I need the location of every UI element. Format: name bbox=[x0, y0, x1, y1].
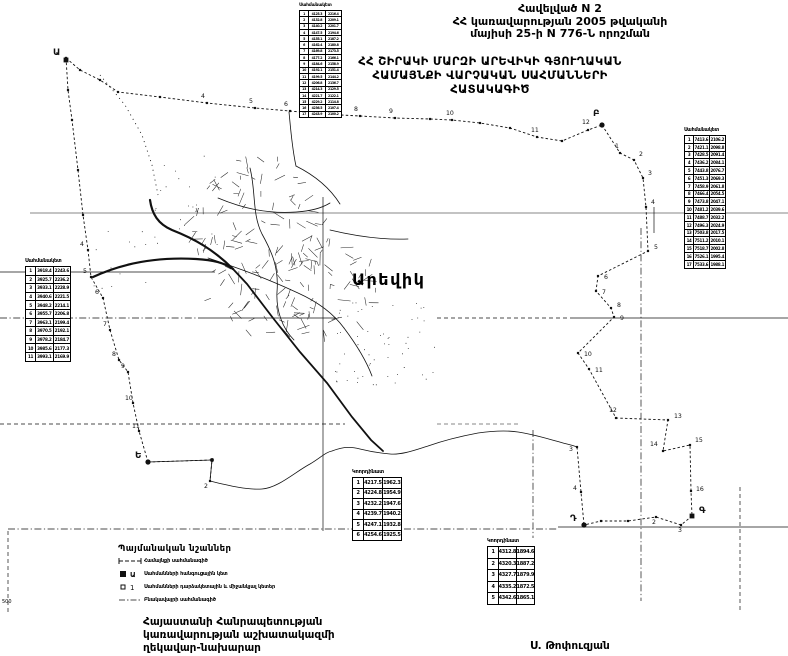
boundary-point-number: 6 bbox=[95, 289, 99, 296]
coordinate-cell: 2039.6 bbox=[710, 206, 725, 213]
boundary-point bbox=[577, 352, 579, 354]
boundary-point-number: 8 bbox=[617, 302, 621, 309]
coordinate-cell: 2017.5 bbox=[710, 230, 725, 237]
coordinate-table-body: 14125.32216.424132.82209.134140.22201.74… bbox=[299, 10, 342, 118]
boundary-point bbox=[209, 480, 211, 482]
boundary-point bbox=[77, 169, 79, 171]
point-number-cell: 1 bbox=[488, 547, 499, 558]
coordinate-cell: 2122.1 bbox=[326, 93, 341, 98]
coordinate-cell: 2069.3 bbox=[710, 175, 725, 182]
boundary-point-number: 12 bbox=[582, 119, 590, 126]
boundary-point-number: 5 bbox=[83, 268, 87, 275]
coordinate-cell: 2216.4 bbox=[326, 11, 341, 16]
boundary-point bbox=[132, 402, 134, 404]
road-line bbox=[218, 198, 330, 212]
boundary-point bbox=[645, 206, 647, 208]
point-number-cell: 7 bbox=[300, 49, 309, 54]
coordinate-table-body: 14312.81894.624320.31887.234327.71879.94… bbox=[487, 546, 535, 605]
coordinate-cell: 4140.2 bbox=[309, 24, 325, 29]
coordinate-table-header: Սահմանակետ bbox=[684, 128, 726, 133]
coordinate-cell: 2158.9 bbox=[326, 61, 341, 66]
point-number-cell: 6 bbox=[26, 310, 36, 318]
coordinate-cell: 4236.5 bbox=[309, 105, 325, 110]
boundary-point bbox=[610, 307, 612, 309]
table-row: 13918.42243.6 bbox=[26, 267, 70, 276]
coordinate-cell: 1947.6 bbox=[383, 499, 401, 509]
coordinate-cell: 7451.3 bbox=[694, 175, 709, 182]
junction-point-letter: Դ bbox=[570, 514, 577, 524]
boundary-point bbox=[576, 446, 578, 448]
coordinate-cell: 2061.8 bbox=[710, 183, 725, 190]
coordinate-cell: 1962.3 bbox=[383, 478, 401, 488]
table-row: 37428.52091.4 bbox=[685, 152, 725, 160]
junction-point-letter: Ա bbox=[53, 48, 60, 58]
coordinate-cell: 1925.5 bbox=[383, 531, 401, 541]
table-row: 54342.61865.1 bbox=[488, 593, 534, 604]
boundary-point bbox=[394, 117, 396, 119]
coordinate-cell: 4320.3 bbox=[499, 559, 517, 570]
boundary-point-number: 14 bbox=[650, 441, 658, 448]
boundary-point bbox=[561, 140, 563, 142]
coordinate-cell: 3933.1 bbox=[36, 284, 53, 292]
coordinate-cell: 2151.4 bbox=[326, 68, 341, 73]
coordinate-cell: 4221.7 bbox=[309, 93, 325, 98]
coordinate-cell: 4243.9 bbox=[309, 112, 325, 117]
table-row: 93978.22184.7 bbox=[26, 336, 70, 345]
coordinate-cell: 3925.7 bbox=[36, 276, 53, 284]
point-number-cell: 3 bbox=[353, 499, 364, 509]
point-number-cell: 4 bbox=[26, 293, 36, 301]
coordinate-cell: 2187.2 bbox=[326, 36, 341, 41]
boundary-point bbox=[597, 275, 599, 277]
point-number-cell: 11 bbox=[26, 353, 36, 361]
legend-item: 1Սահմանների դարձակետային և միջանկյալ կետ… bbox=[118, 580, 338, 593]
boundary-point-number: 8 bbox=[112, 351, 116, 358]
point-number-cell: 5 bbox=[685, 167, 694, 174]
point-number-cell: 3 bbox=[300, 24, 309, 29]
coordinate-cell: 2047.1 bbox=[710, 198, 725, 205]
boundary-point bbox=[71, 119, 73, 121]
point-number-cell: 5 bbox=[300, 36, 309, 41]
coordinate-cell: 2107.4 bbox=[326, 105, 341, 110]
coordinate-cell: 2100.2 bbox=[326, 112, 341, 117]
legend-item: Համայնքի սահմանագիծ bbox=[118, 554, 338, 567]
point-number-cell: 6 bbox=[353, 531, 364, 541]
coordinate-cell: 4147.5 bbox=[309, 30, 325, 35]
junction-point-marker bbox=[690, 514, 695, 519]
boundary-point-number: 5 bbox=[249, 98, 253, 105]
boundary-point-number: 2 bbox=[652, 519, 656, 526]
table-row: 14312.81894.6 bbox=[488, 547, 534, 559]
coordinate-table-body: 14217.51962.324224.81954.934232.21947.64… bbox=[352, 477, 402, 541]
table-row: 107481.22039.6 bbox=[685, 206, 725, 214]
boundary-point bbox=[359, 115, 361, 117]
table-row: 113993.12169.9 bbox=[26, 353, 70, 361]
boundary-point bbox=[680, 524, 682, 526]
boundary-point-number: 12 bbox=[609, 407, 617, 414]
legend-item: Բնակավայրի սահմանագիծ bbox=[118, 593, 338, 606]
point-number-cell: 2 bbox=[488, 559, 499, 570]
terrain-stipple bbox=[155, 156, 218, 244]
table-row: 103985.62177.3 bbox=[26, 344, 70, 353]
coordinate-table: Սահմանակետ14125.32216.424132.82209.13414… bbox=[299, 3, 342, 118]
boundary-point-number: 10 bbox=[446, 110, 454, 117]
point-number-cell: 10 bbox=[26, 344, 36, 352]
coordinate-cell: 4192.1 bbox=[309, 68, 325, 73]
table-row: 73963.12199.4 bbox=[26, 319, 70, 328]
coordinate-table-body: 13918.42243.623925.72236.233933.12228.94… bbox=[25, 266, 71, 362]
boundary-point bbox=[600, 520, 602, 522]
boundary-point-number: 11 bbox=[531, 127, 539, 134]
coordinate-cell: 2010.1 bbox=[710, 237, 725, 244]
point-number-cell: 13 bbox=[300, 87, 309, 92]
footer-line: կառավարության աշխատակազմի bbox=[143, 629, 335, 642]
table-row: 33933.12228.9 bbox=[26, 284, 70, 293]
point-number-cell: 8 bbox=[26, 327, 36, 335]
point-number-cell: 14 bbox=[685, 237, 694, 244]
footer-line: Հայաստանի Հանրապետության bbox=[143, 616, 335, 629]
legend-item-label: Համայնքի սահմանագիծ bbox=[144, 558, 208, 564]
boundary-point bbox=[655, 516, 657, 518]
boundary-point-number: 7 bbox=[103, 321, 107, 328]
coordinate-cell: 2054.5 bbox=[710, 191, 725, 198]
coordinate-cell: 1894.6 bbox=[517, 547, 534, 558]
coordinate-cell: 7413.6 bbox=[694, 136, 709, 143]
boundary-point bbox=[138, 430, 140, 432]
coordinate-cell: 2129.5 bbox=[326, 87, 341, 92]
coordinate-cell: 4312.8 bbox=[499, 547, 517, 558]
junction-point-letter: Ե bbox=[135, 451, 142, 461]
boundary-point bbox=[588, 368, 590, 370]
table-row: 64254.61925.5 bbox=[353, 531, 401, 541]
boundary-point bbox=[595, 290, 597, 292]
coordinate-cell: 2192.1 bbox=[54, 327, 70, 335]
coordinate-cell: 2114.8 bbox=[326, 99, 341, 104]
point-number-cell: 4 bbox=[488, 582, 499, 593]
coordinate-cell: 2201.7 bbox=[326, 24, 341, 29]
boundary-point bbox=[79, 69, 81, 71]
boundary-point bbox=[127, 371, 129, 373]
table-row: 83970.52192.1 bbox=[26, 327, 70, 336]
boundary-point bbox=[254, 107, 256, 109]
boundary-point-number: 10 bbox=[125, 395, 133, 402]
boundary-point-number: 13 bbox=[674, 413, 682, 420]
point-number-cell: 5 bbox=[488, 593, 499, 604]
coordinate-cell: 4125.3 bbox=[309, 11, 325, 16]
boundary-point-number: 3 bbox=[569, 446, 573, 453]
boundary-point bbox=[642, 177, 644, 179]
point-number-cell: 9 bbox=[300, 61, 309, 66]
point-number-cell: 1 bbox=[300, 11, 309, 16]
legend: Պայմանական նշաններ Համայնքի սահմանագիծԱՍ… bbox=[118, 544, 338, 606]
table-row: 174243.92100.2 bbox=[300, 112, 341, 117]
boundary-point bbox=[99, 79, 101, 81]
boundary-point bbox=[667, 419, 669, 421]
coordinate-cell: 1954.9 bbox=[383, 489, 401, 499]
point-number-cell: 12 bbox=[685, 222, 694, 229]
coordinate-cell: 1995.4 bbox=[710, 253, 725, 260]
table-row: 177533.61988.1 bbox=[685, 261, 725, 268]
point-number-cell: 5 bbox=[353, 520, 364, 530]
point-number-cell: 3 bbox=[26, 284, 36, 292]
table-row: 67451.32069.3 bbox=[685, 175, 725, 183]
coordinate-cell: 2024.9 bbox=[710, 222, 725, 229]
point-number-cell: 6 bbox=[685, 175, 694, 182]
coordinate-cell: 2180.8 bbox=[326, 42, 341, 47]
map-sheet: Հավելված N 2 ՀՀ կառավարության 2005 թվակա… bbox=[0, 0, 788, 656]
coordinate-cell: 2084.1 bbox=[710, 159, 725, 166]
boundary-point-number: 4 bbox=[80, 241, 84, 248]
table-row: 14217.51962.3 bbox=[353, 478, 401, 489]
coordinate-cell: 1865.1 bbox=[517, 593, 534, 604]
coordinate-cell: 7488.7 bbox=[694, 214, 709, 221]
coordinate-cell: 3955.7 bbox=[36, 310, 53, 318]
boundary-point bbox=[689, 444, 691, 446]
coordinate-cell: 4217.5 bbox=[364, 478, 382, 488]
boundary-west-boundary bbox=[66, 58, 148, 462]
boundary-point bbox=[289, 110, 291, 112]
coordinate-cell: 2228.9 bbox=[54, 284, 70, 292]
coordinate-cell: 3970.5 bbox=[36, 327, 53, 335]
point-number-cell: 2 bbox=[300, 17, 309, 22]
table-row: 23925.72236.2 bbox=[26, 276, 70, 285]
table-row: 97473.82047.1 bbox=[685, 198, 725, 206]
coordinate-cell: 2209.1 bbox=[326, 17, 341, 22]
coordinate-cell: 2243.6 bbox=[54, 267, 70, 275]
point-number-cell: 4 bbox=[353, 510, 364, 520]
junction-point-marker bbox=[599, 122, 604, 127]
junction-point-marker bbox=[581, 522, 586, 527]
coordinate-cell: 2206.8 bbox=[54, 310, 70, 318]
coordinate-cell: 2091.4 bbox=[710, 152, 725, 159]
coordinate-cell: 7428.5 bbox=[694, 152, 709, 159]
coordinate-cell: 4224.8 bbox=[364, 489, 382, 499]
boundary-point-number: 2 bbox=[639, 151, 643, 158]
point-number-cell: 4 bbox=[300, 30, 309, 35]
junction-point-marker bbox=[145, 459, 150, 464]
boundary-point bbox=[509, 127, 511, 129]
table-row: 57443.82076.7 bbox=[685, 167, 725, 175]
coordinate-cell: 7436.2 bbox=[694, 159, 709, 166]
point-number-cell: 1 bbox=[685, 136, 694, 143]
boundary-point bbox=[627, 520, 629, 522]
coordinate-cell: 7421.1 bbox=[694, 144, 709, 151]
coordinate-cell: 2194.6 bbox=[326, 30, 341, 35]
coordinate-cell: 1988.1 bbox=[710, 261, 725, 268]
boundary-point bbox=[118, 359, 120, 361]
point-number-cell: 12 bbox=[300, 80, 309, 85]
boundary-point bbox=[109, 329, 111, 331]
boundary-point bbox=[587, 129, 589, 131]
point-number-cell: 2 bbox=[685, 144, 694, 151]
boundary-point bbox=[690, 490, 692, 492]
point-number-cell: 11 bbox=[685, 214, 694, 221]
boundary-point bbox=[647, 250, 649, 252]
scale-note: 500 bbox=[2, 599, 12, 605]
coordinate-cell: 3993.1 bbox=[36, 353, 53, 361]
point-number-cell: 6 bbox=[300, 42, 309, 47]
boundary-point bbox=[580, 491, 582, 493]
coordinate-cell: 3948.2 bbox=[36, 301, 53, 309]
road-line bbox=[250, 168, 294, 340]
point-number-cell: 1 bbox=[353, 478, 364, 488]
table-row: 167526.11995.4 bbox=[685, 253, 725, 261]
point-number-cell: 15 bbox=[300, 99, 309, 104]
table-row: 137503.82017.5 bbox=[685, 230, 725, 238]
point-number-cell: 7 bbox=[685, 183, 694, 190]
coordinate-cell: 3918.4 bbox=[36, 267, 53, 275]
coordinate-cell: 7526.1 bbox=[694, 253, 709, 260]
coordinate-cell: 7466.4 bbox=[694, 191, 709, 198]
boundary-point bbox=[117, 91, 119, 93]
boundary-point-number: 6 bbox=[604, 274, 608, 281]
boundary-point-number: 15 bbox=[695, 437, 703, 444]
table-row: 34232.21947.6 bbox=[353, 499, 401, 510]
coordinate-cell: 4335.2 bbox=[499, 582, 517, 593]
point-number-cell: 15 bbox=[685, 245, 694, 252]
coordinate-cell: 1879.9 bbox=[517, 570, 534, 581]
point-number-cell: 16 bbox=[685, 253, 694, 260]
point-number-cell: 1 bbox=[26, 267, 36, 275]
point-number-cell: 5 bbox=[26, 301, 36, 309]
coordinate-cell: 2106.2 bbox=[710, 136, 725, 143]
boundary-point-number: 9 bbox=[121, 363, 125, 370]
road-line bbox=[344, 328, 372, 376]
table-row: 24224.81954.9 bbox=[353, 489, 401, 500]
boundary-point bbox=[211, 459, 213, 461]
table-row: 157518.72002.8 bbox=[685, 245, 725, 253]
coordinate-cell: 4327.7 bbox=[499, 570, 517, 581]
point-number-cell: 9 bbox=[26, 336, 36, 344]
boundary-point bbox=[536, 136, 538, 138]
boundary-point-number: 8 bbox=[354, 106, 358, 113]
point-number-cell: 2 bbox=[26, 276, 36, 284]
issuer-signature-block: Հայաստանի Հանրապետության կառավարության ա… bbox=[143, 616, 335, 655]
boundary-point bbox=[102, 297, 104, 299]
boundary-point-number: 7 bbox=[602, 289, 606, 296]
coordinate-cell: 1887.2 bbox=[517, 559, 534, 570]
coordinate-table: Սահմանակետ13918.42243.623925.72236.23393… bbox=[25, 258, 71, 362]
point-number-cell: 4 bbox=[685, 159, 694, 166]
boundary-point-number: 11 bbox=[132, 423, 140, 430]
table-row: 127496.32024.9 bbox=[685, 222, 725, 230]
coordinate-cell: 7533.6 bbox=[694, 261, 709, 268]
table-row: 27421.12098.8 bbox=[685, 144, 725, 152]
boundary-point-number: 3 bbox=[678, 527, 682, 534]
boundary-point-number: 9 bbox=[389, 108, 393, 115]
coordinate-table-header: Սահմանակետ bbox=[299, 3, 342, 8]
point-number-cell: 17 bbox=[300, 112, 309, 117]
coordinate-cell: 2098.8 bbox=[710, 144, 725, 151]
boundary-point bbox=[90, 276, 92, 278]
junction-point-letter: Բ bbox=[593, 109, 600, 119]
terrain-stipple bbox=[94, 231, 147, 288]
coordinate-cell: 2236.2 bbox=[54, 276, 70, 284]
coordinate-cell: 4239.7 bbox=[364, 510, 382, 520]
coordinate-cell: 2177.3 bbox=[54, 344, 70, 352]
coordinate-cell: 3985.6 bbox=[36, 344, 53, 352]
coordinate-cell: 7481.2 bbox=[694, 206, 709, 213]
coordinate-cell: 7473.8 bbox=[694, 198, 709, 205]
coordinate-cell: 2173.5 bbox=[326, 49, 341, 54]
point-number-cell: 7 bbox=[26, 319, 36, 327]
coordinate-cell: 4229.2 bbox=[309, 99, 325, 104]
coordinate-cell: 7443.8 bbox=[694, 167, 709, 174]
boundary-point-number: 5 bbox=[654, 244, 658, 251]
point-number-cell: 8 bbox=[685, 191, 694, 198]
road-line bbox=[289, 112, 296, 166]
coordinate-cell: 4342.6 bbox=[499, 593, 517, 604]
coordinate-cell: 1940.2 bbox=[383, 510, 401, 520]
coordinate-cell: 4214.3 bbox=[309, 87, 325, 92]
table-row: 24320.31887.2 bbox=[488, 559, 534, 571]
table-row: 53948.22214.1 bbox=[26, 301, 70, 310]
point-number-cell: 3 bbox=[488, 570, 499, 581]
boundary-point-number: 2 bbox=[204, 483, 208, 490]
point-number-cell: 10 bbox=[685, 206, 694, 213]
legend-title: Պայմանական նշաններ bbox=[118, 544, 338, 554]
boundary-point-number: 4 bbox=[573, 485, 577, 492]
coordinate-cell: 7496.3 bbox=[694, 222, 709, 229]
coordinate-cell: 4132.8 bbox=[309, 17, 325, 22]
signatory-name: Ս. Թոփուզյան bbox=[530, 640, 610, 652]
coordinate-cell: 2214.1 bbox=[54, 301, 70, 309]
table-row: 47436.22084.1 bbox=[685, 159, 725, 167]
coordinate-cell: 2184.7 bbox=[54, 336, 70, 344]
legend-item-label: Սահմանների հանգուցային կետ bbox=[144, 571, 228, 577]
point-number-cell: 2 bbox=[353, 489, 364, 499]
coordinate-cell: 4206.8 bbox=[309, 80, 325, 85]
coordinate-cell: 2199.4 bbox=[54, 319, 70, 327]
table-row: 77458.92061.8 bbox=[685, 183, 725, 191]
point-number-cell: 8 bbox=[300, 55, 309, 60]
table-row: 44335.21872.5 bbox=[488, 582, 534, 594]
coordinate-cell: 1932.8 bbox=[383, 520, 401, 530]
coordinate-table-header: Սահմանակետ bbox=[25, 258, 71, 264]
point-number-cell: 16 bbox=[300, 105, 309, 110]
point-number-cell: 13 bbox=[685, 230, 694, 237]
coordinate-cell: 4162.4 bbox=[309, 42, 325, 47]
coordinate-cell: 2166.1 bbox=[326, 55, 341, 60]
road-line bbox=[330, 230, 408, 239]
road-line bbox=[93, 259, 233, 277]
boundary-point bbox=[67, 89, 69, 91]
boundary-point-number: 10 bbox=[584, 351, 592, 358]
coordinate-cell: 4169.8 bbox=[309, 49, 325, 54]
boundary-point-number: 4 bbox=[651, 199, 655, 206]
coordinate-cell: 7518.7 bbox=[694, 245, 709, 252]
coordinate-cell: 4184.6 bbox=[309, 61, 325, 66]
table-row: 43940.62221.5 bbox=[26, 293, 70, 302]
coordinate-cell: 1872.5 bbox=[517, 582, 534, 593]
settlement-boundary-line-icon bbox=[118, 590, 144, 609]
legend-items: Համայնքի սահմանագիծԱՍահմանների հանգուցայ… bbox=[118, 554, 338, 606]
boundary-west-link bbox=[148, 460, 212, 481]
table-row: 117488.72032.2 bbox=[685, 214, 725, 222]
coordinate-cell: 7511.2 bbox=[694, 237, 709, 244]
boundary-point bbox=[451, 119, 453, 121]
boundary-point bbox=[662, 450, 664, 452]
boundary-point bbox=[206, 102, 208, 104]
coordinate-cell: 7458.9 bbox=[694, 183, 709, 190]
boundary-point-number: 9 bbox=[620, 315, 624, 322]
table-row: 147511.22010.1 bbox=[685, 237, 725, 245]
coordinate-table: Սահմանակետ17413.62106.227421.12098.83742… bbox=[684, 128, 726, 269]
coordinate-table: Կոորդինատ14312.81894.624320.31887.234327… bbox=[487, 538, 535, 605]
table-row: 34327.71879.9 bbox=[488, 570, 534, 582]
table-row: 63955.72206.8 bbox=[26, 310, 70, 319]
coordinate-table-header: Կոորդինատ bbox=[352, 469, 402, 475]
